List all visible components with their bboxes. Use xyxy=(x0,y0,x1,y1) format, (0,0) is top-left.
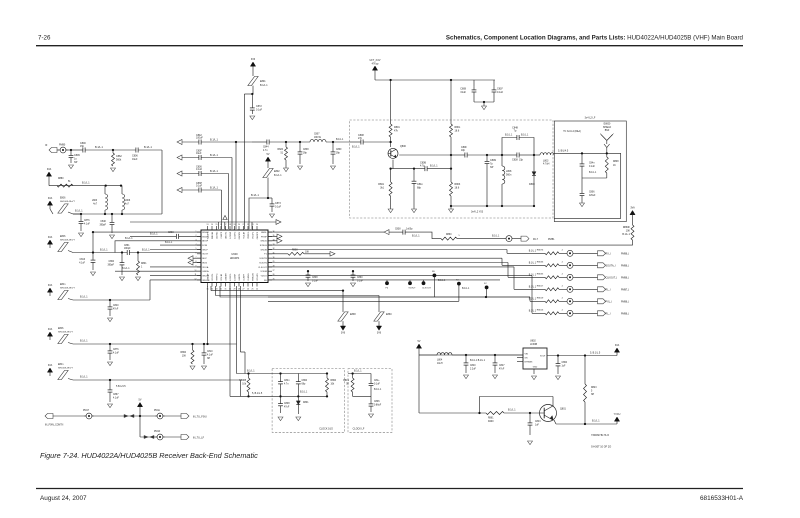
svg-text:IN_TU_LF: IN_TU_LF xyxy=(193,437,205,440)
svg-text:GNOU: GNOU xyxy=(260,241,267,243)
svg-text:Schematics, Component Location: Schematics, Component Location Diagrams,… xyxy=(446,34,744,41)
svg-text:390pF: 390pF xyxy=(99,225,106,227)
svg-text:RL_l: RL_l xyxy=(606,289,611,292)
svg-text:C810: C810 xyxy=(207,351,213,353)
svg-text:VOCPL: VOCPL xyxy=(252,231,254,239)
svg-text:27: 27 xyxy=(273,270,275,272)
svg-text:180pF: 180pF xyxy=(124,248,131,250)
svg-text:0.1uF: 0.1uF xyxy=(256,109,263,112)
svg-text:C847: C847 xyxy=(499,365,505,367)
svg-text:B.1/L.1: B.1/L.1 xyxy=(354,369,362,372)
svg-text:CLKNG: CLKNG xyxy=(248,273,250,281)
svg-text:3VA: 3VA xyxy=(48,284,53,287)
svg-text:C84F: C84F xyxy=(100,221,106,223)
svg-text:E801: E801 xyxy=(260,80,266,83)
svg-text:SH1008-49n7T: SH1008-49n7T xyxy=(58,367,73,369)
svg-text:5, B.1/L.5: 5, B.1/L.5 xyxy=(252,392,263,395)
svg-text:TC 3x4 L2 (R&A): TC 3x4 L2 (R&A) xyxy=(563,130,581,133)
svg-text:1uF: 1uF xyxy=(535,425,540,427)
svg-text:C816: C816 xyxy=(80,259,86,261)
svg-text:16: 16 xyxy=(220,224,222,226)
svg-text:VOL1R: VOL1R xyxy=(221,273,223,280)
svg-text:R400: R400 xyxy=(488,421,494,423)
svg-text:5K: 5K xyxy=(346,384,349,386)
svg-text:B.1/L.1: B.1/L.1 xyxy=(210,154,219,157)
svg-text:18.6: 18.6 xyxy=(455,130,460,133)
svg-text:14: 14 xyxy=(211,224,213,226)
svg-text:01uF: 01uF xyxy=(196,152,202,155)
svg-text:C844: C844 xyxy=(263,147,269,149)
svg-text:VDOA: VDOA xyxy=(202,266,209,269)
svg-text:560n: 560n xyxy=(506,174,512,177)
svg-text:NP: NP xyxy=(591,394,595,396)
svg-text:390pF: 390pF xyxy=(107,265,114,267)
svg-text:VOGPS: VOGPS xyxy=(257,273,259,281)
svg-text:FC: FC xyxy=(484,283,487,285)
svg-text:E838: E838 xyxy=(350,313,356,316)
svg-text:5V: 5V xyxy=(267,153,270,156)
svg-text:B.1/L.1: B.1/L.1 xyxy=(462,288,470,290)
svg-text:GNOB: GNOB xyxy=(260,249,267,251)
svg-text:RL_l: RL_l xyxy=(606,313,611,316)
svg-text:NP: NP xyxy=(207,358,211,360)
svg-text:FBKGN: FBKGN xyxy=(252,273,254,281)
svg-text:FRGF: FRGF xyxy=(261,236,268,238)
svg-text:B.1/L.1: B.1/L.1 xyxy=(492,236,500,238)
svg-text:R8035: R8035 xyxy=(537,273,544,275)
svg-text:B.1/L.1: B.1/L.1 xyxy=(210,170,219,173)
svg-text:PM81: PM81 xyxy=(548,238,555,241)
svg-text:VODM: VODM xyxy=(260,271,267,273)
svg-text:B.1/L.1: B.1/L.1 xyxy=(80,340,88,343)
svg-text:C838: C838 xyxy=(512,159,518,162)
svg-text:SYNLB: SYNLB xyxy=(260,245,268,247)
svg-text:5, B.1/L.5: 5, B.1/L.5 xyxy=(590,351,601,354)
svg-text:27p: 27p xyxy=(358,137,363,140)
svg-text:0.1uF: 0.1uF xyxy=(196,185,203,188)
svg-text:01uF: 01uF xyxy=(461,91,467,94)
svg-text:4.1uF: 4.1uF xyxy=(207,355,213,357)
svg-text:4.1uF: 4.1uF xyxy=(113,398,119,400)
svg-text:NP: NP xyxy=(74,161,78,164)
svg-text:7-26: 7-26 xyxy=(38,34,51,41)
svg-text:B.1/L.1: B.1/L.1 xyxy=(529,298,537,300)
svg-text:3VA: 3VA xyxy=(615,344,620,347)
svg-text:CLKOUT_l: CLKOUT_l xyxy=(606,277,618,280)
svg-text:0x5uF: 0x5uF xyxy=(589,195,596,197)
svg-text:B.1/L.1: B.1/L.1 xyxy=(125,237,133,240)
svg-text:3VA: 3VA xyxy=(48,197,53,200)
svg-text:C81+: C81+ xyxy=(374,380,380,382)
svg-text:GNOPF: GNOPF xyxy=(207,273,209,281)
svg-text:C838: C838 xyxy=(303,149,309,151)
svg-text:C840: C840 xyxy=(113,305,119,307)
svg-text:B.1/L.1: B.1/L.1 xyxy=(478,360,486,362)
svg-text:S-H30T 10 OF 2O: S-H30T 10 OF 2O xyxy=(591,446,611,449)
svg-text:B.1/L.1: B.1/L.1 xyxy=(592,420,600,423)
svg-text:C807: C807 xyxy=(314,134,320,136)
svg-text:47uF: 47uF xyxy=(113,309,119,311)
svg-text:E806: E806 xyxy=(60,236,66,238)
svg-text:PM1n: PM1n xyxy=(154,410,161,412)
svg-text:PM86_l: PM86_l xyxy=(621,277,630,280)
svg-text:C861: C861 xyxy=(124,245,130,247)
svg-text:GNOPF: GNOPF xyxy=(257,231,259,239)
svg-text:B.1/L.1: B.1/L.1 xyxy=(336,139,344,141)
svg-text:B.1/L.1: B.1/L.1 xyxy=(122,267,130,270)
svg-text:CLOCK 16/2: CLOCK 16/2 xyxy=(319,428,333,431)
svg-text:H004Pb: H004Pb xyxy=(230,256,240,260)
svg-text:B.1/L.1: B.1/L.1 xyxy=(505,135,513,137)
svg-text:3VA: 3VA xyxy=(48,236,53,239)
svg-text:SOUTN: SOUTN xyxy=(259,262,267,264)
svg-text:3V6: 3V6 xyxy=(251,58,256,61)
svg-text:CLKPF: CLKPF xyxy=(221,231,223,238)
svg-text:CLKPF: CLKPF xyxy=(243,273,245,280)
svg-text:E80n: E80n xyxy=(60,284,66,286)
svg-text:August 24, 2007: August 24, 2007 xyxy=(40,495,87,502)
svg-text:GNOA: GNOA xyxy=(202,270,209,273)
svg-text:47uF: 47uF xyxy=(284,407,290,409)
svg-text:R861: R861 xyxy=(488,417,494,419)
svg-text:B.1/L.1: B.1/L.1 xyxy=(412,235,420,238)
svg-text:22: 22 xyxy=(247,224,249,226)
svg-text:15p: 15p xyxy=(80,145,85,148)
svg-text:CLOCK LF: CLOCK LF xyxy=(353,428,365,431)
svg-text:SOUT: SOUT xyxy=(540,356,546,358)
svg-text:15: 15 xyxy=(216,224,218,226)
svg-text:L806: L806 xyxy=(92,200,98,202)
svg-text:C803: C803 xyxy=(168,232,174,234)
svg-text:NP: NP xyxy=(490,166,494,169)
svg-text:C876: C876 xyxy=(113,349,119,351)
svg-text:SOUTA_l: SOUTA_l xyxy=(606,265,616,268)
svg-text:E806: E806 xyxy=(60,197,66,199)
svg-text:SH1008-49n7T: SH1008-49n7T xyxy=(60,287,75,289)
svg-text:4.7uH: 4.7uH xyxy=(543,163,550,166)
svg-text:10uH: 10uH xyxy=(437,363,443,365)
svg-text:47uF: 47uF xyxy=(499,369,505,371)
svg-text:B.1/L.1: B.1/L.1 xyxy=(430,165,438,168)
svg-text:B.1/L.1: B.1/L.1 xyxy=(622,233,630,236)
svg-text:SH1008-49n7T: SH1008-49n7T xyxy=(60,239,75,241)
svg-text:0.1uF: 0.1uF xyxy=(374,384,380,386)
svg-text:FCIN: FCIN xyxy=(202,245,207,247)
svg-text:E806: E806 xyxy=(58,328,64,330)
svg-text:0.86uF: 0.86uF xyxy=(374,405,382,407)
svg-text:LO1PG: LO1PG xyxy=(234,231,236,238)
svg-text:B.1/L.1: B.1/L.1 xyxy=(251,194,260,197)
svg-text:PM1F: PM1F xyxy=(154,431,161,433)
svg-text:C860: C860 xyxy=(357,277,363,279)
svg-text:VDGT: VDGT xyxy=(202,254,209,256)
svg-text:IELP: IELP xyxy=(202,258,207,260)
svg-text:PM17: PM17 xyxy=(83,410,90,412)
svg-text:C84n: C84n xyxy=(284,380,290,382)
svg-text:3V6: 3V6 xyxy=(341,332,346,335)
svg-text:Q800: Q800 xyxy=(400,145,407,148)
svg-text:B.1/L.1: B.1/L.1 xyxy=(144,146,153,149)
svg-text:B.1/L.1: B.1/L.1 xyxy=(274,174,282,177)
svg-text:47Kcp: 47Kcp xyxy=(372,62,379,65)
svg-text:R8016: R8016 xyxy=(537,309,544,311)
svg-text:GNOBV: GNOBV xyxy=(225,273,227,281)
svg-text:Figure 7-24. HUD4022A/HUD4025B: Figure 7-24. HUD4022A/HUD4025B Receiver … xyxy=(40,451,258,460)
svg-text:FIL7: FIL7 xyxy=(533,238,539,241)
svg-text:B.1/L.1: B.1/L.1 xyxy=(589,172,597,174)
svg-text:BNF: BNF xyxy=(605,130,610,132)
svg-text:3VA: 3VA xyxy=(630,207,635,210)
svg-text:IN_FIXN_CONTN: IN_FIXN_CONTN xyxy=(45,424,64,426)
svg-text:B.1/L.1: B.1/L.1 xyxy=(165,242,173,244)
svg-text:4.1uF: 4.1uF xyxy=(84,224,90,226)
svg-text:GND: GND xyxy=(533,367,538,369)
svg-text:YRFFG: YRFFG xyxy=(216,273,218,280)
svg-text:C867: C867 xyxy=(113,394,119,396)
svg-text:B.1/L.1: B.1/L.1 xyxy=(529,250,537,252)
svg-text:6816533H01-A: 6816533H01-A xyxy=(700,495,744,502)
svg-text:VOCPL: VOCPL xyxy=(212,273,214,281)
svg-text:180.5k: 180.5k xyxy=(314,137,322,139)
svg-text:C806: C806 xyxy=(589,192,595,194)
svg-text:C843: C843 xyxy=(535,421,541,423)
svg-text:B.1/L.1: B.1/L.1 xyxy=(75,210,83,213)
svg-text:5, B/L/4.5: 5, B/L/4.5 xyxy=(558,149,569,152)
svg-text:0.1uF: 0.1uF xyxy=(196,168,203,171)
svg-text:5 B.1/4.5: 5 B.1/4.5 xyxy=(116,385,126,388)
svg-text:B.1/L.1: B.1/L.1 xyxy=(529,286,537,288)
svg-text:19: 19 xyxy=(234,224,236,226)
svg-text:4.7n: 4.7n xyxy=(263,150,268,152)
svg-text:73DI09Y8L73-O: 73DI09Y8L73-O xyxy=(591,434,609,437)
svg-text:5V: 5V xyxy=(139,399,142,402)
svg-text:18: 18 xyxy=(229,224,231,226)
svg-text:YRFFG: YRFFG xyxy=(248,231,250,238)
svg-text:4.7n: 4.7n xyxy=(284,384,289,386)
svg-text:VRLP: VRLP xyxy=(202,249,208,251)
svg-text:R8076: R8076 xyxy=(537,249,544,251)
svg-text:VOGPS: VOGPS xyxy=(207,231,209,239)
svg-text:10K: 10K xyxy=(182,356,187,358)
svg-text:R8019: R8019 xyxy=(537,297,544,299)
svg-text:GNDL: GNDL xyxy=(261,232,268,234)
svg-text:R860: R860 xyxy=(446,234,452,236)
svg-text:1K: 1K xyxy=(613,165,616,167)
svg-text:IELN: IELN xyxy=(202,262,207,264)
svg-text:FBKGN: FBKGN xyxy=(212,231,214,239)
svg-text:LO1NF: LO1NF xyxy=(234,273,236,280)
svg-text:SH1008-49n7T: SH1008-49n7T xyxy=(60,201,75,203)
svg-text:4.1uF: 4.1uF xyxy=(79,263,85,265)
svg-text:BKGF: BKGF xyxy=(202,241,209,243)
svg-text:R81S: R81S xyxy=(343,380,349,382)
svg-text:B.1/L.1: B.1/L.1 xyxy=(529,310,537,312)
svg-text:2.2uF: 2.2uF xyxy=(470,369,476,371)
svg-text:0.1uF: 0.1uF xyxy=(589,166,595,168)
svg-text:PM87_l: PM87_l xyxy=(621,289,630,292)
svg-text:B.1/L.1: B.1/L.1 xyxy=(150,233,158,236)
svg-text:PM86_l: PM86_l xyxy=(621,253,630,256)
svg-text:B.1/L.1: B.1/L.1 xyxy=(374,389,382,391)
svg-text:U600: U600 xyxy=(231,252,238,256)
svg-text:3V6: 3V6 xyxy=(377,332,382,335)
svg-text:B.1/L.1: B.1/L.1 xyxy=(80,296,88,299)
svg-text:01uF: 01uF xyxy=(132,158,138,161)
svg-text:3VA: 3VA xyxy=(48,364,53,367)
svg-text:E8000: E8000 xyxy=(604,123,611,125)
svg-text:3x4 L2 LF: 3x4 L2 LF xyxy=(585,117,596,120)
svg-text:C808: C808 xyxy=(312,277,318,279)
svg-text:CLKOUT: CLKOUT xyxy=(258,267,267,269)
svg-text:3VA: 3VA xyxy=(47,168,52,171)
svg-text:21: 21 xyxy=(243,224,245,226)
svg-text:0.1uF: 0.1uF xyxy=(357,280,363,282)
svg-text:20: 20 xyxy=(238,224,240,226)
svg-text:R860: R860 xyxy=(331,380,337,382)
svg-text:IN_TU_FIXU: IN_TU_FIXU xyxy=(193,416,207,419)
svg-text:R8017: R8017 xyxy=(537,285,544,287)
svg-text:SHIELD: SHIELD xyxy=(603,127,612,129)
svg-text:CLKNG: CLKNG xyxy=(216,231,218,239)
svg-text:PM80: PM80 xyxy=(59,144,66,147)
svg-text:L804: L804 xyxy=(437,360,443,362)
svg-text:B.1/L.1: B.1/L.1 xyxy=(210,139,219,142)
svg-text:YDOO: YDOO xyxy=(260,275,267,277)
svg-text:1n00p: 1n00p xyxy=(406,228,413,230)
svg-text:15p: 15p xyxy=(519,159,524,162)
svg-text:68p: 68p xyxy=(417,187,422,190)
svg-text:R860: R860 xyxy=(181,352,187,354)
svg-text:C876: C876 xyxy=(84,220,90,222)
svg-text:C808: C808 xyxy=(284,403,290,405)
svg-text:560k: 560k xyxy=(116,159,122,162)
svg-text:3x4 L2 Y03: 3x4 L2 Y03 xyxy=(471,211,484,214)
svg-text:SH1008-49n7T: SH1008-49n7T xyxy=(58,331,73,333)
svg-text:B.1/L.1: B.1/L.1 xyxy=(247,369,255,372)
svg-text:E80n: E80n xyxy=(58,364,64,366)
svg-text:BYPASS: BYPASS xyxy=(525,360,534,363)
svg-text:B.1/L.1: B.1/L.1 xyxy=(352,146,360,149)
svg-text:CLKOUT: CLKOUT xyxy=(422,288,432,290)
svg-text:GNOBV: GNOBV xyxy=(239,231,241,239)
svg-text:C83F: C83F xyxy=(336,149,342,151)
svg-text:C84n: C84n xyxy=(589,163,595,165)
svg-text:0.1uF: 0.1uF xyxy=(275,206,282,209)
svg-text:B.1/L.1: B.1/L.1 xyxy=(438,280,446,282)
svg-text:E860: E860 xyxy=(386,313,392,316)
svg-text:R823: R823 xyxy=(591,387,597,389)
svg-text:C838: C838 xyxy=(395,228,401,230)
svg-text:1uF: 1uF xyxy=(562,366,567,368)
svg-text:B.1/L.1: B.1/L.1 xyxy=(210,187,219,190)
svg-text:L806: L806 xyxy=(125,200,131,202)
svg-text:B.1/L.1: B.1/L.1 xyxy=(300,392,308,394)
svg-text:4.1uF: 4.1uF xyxy=(113,353,119,355)
svg-text:SOUTB: SOUTB xyxy=(259,258,267,260)
svg-text:PXL_l: PXL_l xyxy=(606,301,613,304)
svg-text:B.1/L.1: B.1/L.1 xyxy=(508,409,516,412)
svg-text:Q801: Q801 xyxy=(560,408,567,411)
svg-text:E802: E802 xyxy=(274,170,280,173)
svg-text:B.1/L.1: B.1/L.1 xyxy=(142,248,150,251)
svg-text:R8036: R8036 xyxy=(537,261,544,263)
svg-text:RX_l: RX_l xyxy=(606,253,612,256)
svg-text:B.1/L.1: B.1/L.1 xyxy=(80,376,88,379)
svg-text:B.1/L.1: B.1/L.1 xyxy=(529,262,537,264)
svg-text:C840: C840 xyxy=(470,365,476,367)
svg-text:91OUT: 91OUT xyxy=(409,288,417,290)
svg-text:C860: C860 xyxy=(562,362,568,364)
svg-text:LF30B: LF30B xyxy=(530,343,537,346)
svg-text:PM86_l: PM86_l xyxy=(621,265,630,268)
svg-text:4.7p: 4.7p xyxy=(420,165,425,168)
svg-text:GNOTL: GNOTL xyxy=(225,231,227,239)
svg-text:B.1/L.1: B.1/L.1 xyxy=(521,135,529,137)
svg-text:GNOTL: GNOTL xyxy=(239,273,241,281)
svg-text:13: 13 xyxy=(207,224,209,226)
svg-text:C860: C860 xyxy=(109,261,115,263)
svg-text:C806: C806 xyxy=(374,401,380,403)
svg-text:C860: C860 xyxy=(302,380,308,382)
svg-text:B.1/L.1: B.1/L.1 xyxy=(260,84,268,87)
svg-text:PM86_l: PM86_l xyxy=(621,301,630,304)
svg-text:R808: R808 xyxy=(613,161,619,163)
svg-text:18.6: 18.6 xyxy=(455,187,460,190)
svg-text:100uF: 100uF xyxy=(196,137,203,140)
svg-text:33: 33 xyxy=(273,244,275,246)
svg-text:24: 24 xyxy=(256,224,258,226)
svg-text:R801: R801 xyxy=(141,263,147,265)
svg-text:3VA: 3VA xyxy=(48,328,53,331)
svg-text:LO1PG: LO1PG xyxy=(230,273,232,280)
svg-text:VIN: VIN xyxy=(525,353,529,355)
svg-text:R8088: R8088 xyxy=(239,380,246,382)
svg-text:PM86_l: PM86_l xyxy=(621,313,630,316)
svg-text:YVCU: YVCU xyxy=(614,413,621,416)
svg-text:B.1/L.1: B.1/L.1 xyxy=(82,181,90,184)
svg-text:D801: D801 xyxy=(303,402,309,404)
svg-text:3k1: 3k1 xyxy=(380,187,385,190)
svg-text:VOL1R: VOL1R xyxy=(243,231,245,238)
svg-text:B.1/L.1: B.1/L.1 xyxy=(95,146,104,149)
svg-text:18p: 18p xyxy=(461,149,466,152)
svg-text:D800: D800 xyxy=(529,183,535,186)
svg-text:10K: 10K xyxy=(305,252,310,254)
svg-text:B.1/L.1: B.1/L.1 xyxy=(100,248,108,251)
svg-text:LO1NF: LO1NF xyxy=(230,231,232,238)
svg-text:R820: R820 xyxy=(278,149,284,151)
svg-text:5V: 5V xyxy=(418,340,421,343)
svg-text:0.1uF: 0.1uF xyxy=(312,280,318,282)
svg-text:0.1uF: 0.1uF xyxy=(497,91,504,94)
svg-text:R880: R880 xyxy=(58,178,64,180)
